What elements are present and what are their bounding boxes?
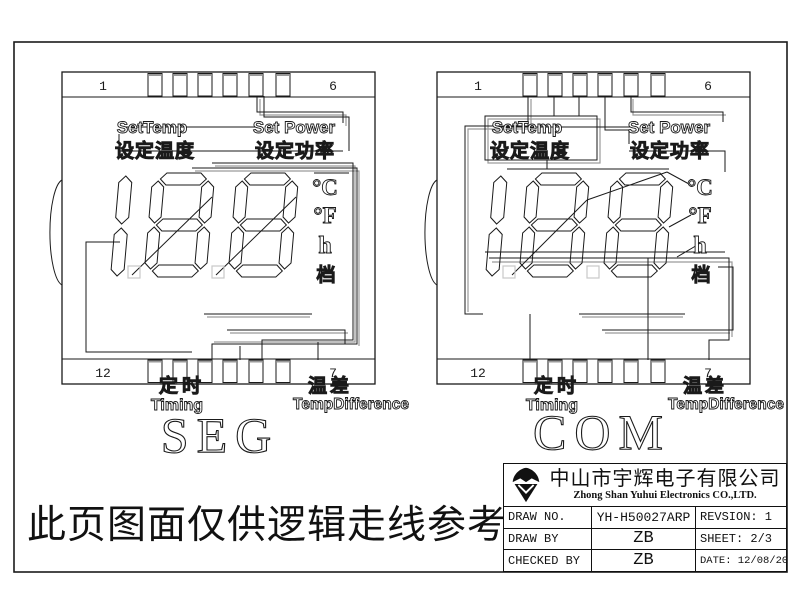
pin-contact-bottom: [651, 360, 665, 383]
decimal-point-left: [503, 266, 515, 278]
gear-symbol: 档: [316, 263, 335, 286]
pin-contact-top: [198, 74, 212, 97]
seven-segment-outline: [160, 173, 207, 185]
draw-by-label: DRAW BY: [504, 529, 592, 551]
seven-segment-outline: [195, 227, 211, 269]
draw-no-label: DRAW NO.: [504, 507, 592, 529]
seven-segment-outline: [152, 265, 199, 277]
set-temp-label-cn: 设定温度: [490, 139, 570, 162]
seven-segment-outline: [244, 173, 291, 185]
set-power-label-en: Set Power: [253, 118, 336, 137]
seven-segment-outline: [604, 227, 620, 269]
digit-1: [111, 176, 133, 276]
lcd-panel-com: 16127SetTemp设定温度Set Power设定功率定时Timing温差T…: [425, 72, 784, 414]
celsius-symbol: °C: [687, 175, 713, 200]
title-block-table: DRAW NO. YH-H50027ARP REVSION: 1 DRAW BY…: [504, 507, 786, 572]
pin-number-12: 12: [95, 366, 111, 381]
digit-8-left: [144, 173, 215, 277]
company-name-en: Zhong Shan Yuhui Electronics CO.,LTD.: [544, 490, 786, 502]
seven-segment-outline: [608, 181, 624, 223]
seven-segment-outline: [658, 181, 674, 223]
routing-trace: [605, 96, 629, 144]
seven-segment-outline: [611, 265, 658, 277]
seven-segment-outline: [524, 181, 540, 223]
date-value: DATE: 12/08/2020: [696, 550, 786, 572]
pin-number-6: 6: [329, 79, 337, 94]
pin-contact-bottom: [624, 360, 638, 383]
seven-segment-outline: [615, 219, 662, 231]
routing-trace: [86, 242, 192, 352]
routing-trace: [512, 200, 587, 275]
pin-contact-top: [624, 74, 638, 97]
seven-segment-outline: [229, 227, 245, 269]
title-block: 中山市宇辉电子有限公司 Zhong Shan Yuhui Electronics…: [503, 463, 787, 572]
digit-one-segment: [490, 176, 507, 224]
draw-by-value: ZB: [592, 529, 696, 551]
pin-contact-top: [598, 74, 612, 97]
set-power-label-cn: 设定功率: [630, 139, 710, 162]
pin-contact-top: [523, 74, 537, 97]
lcd-panel-seg: 16127SetTemp设定温度Set Power设定功率定时Timing温差T…: [50, 72, 409, 414]
seven-segment-outline: [279, 227, 295, 269]
fahrenheit-symbol: °F: [313, 203, 336, 228]
pin-contact-bottom: [249, 360, 263, 383]
temp-diff-label-en: TempDifference: [293, 396, 409, 413]
seven-segment-outline: [527, 265, 574, 277]
gear-symbol: 档: [691, 263, 710, 286]
sheet-value: SHEET: 2/3: [696, 529, 786, 551]
routing-trace: [487, 96, 554, 116]
set-temp-label-en: SetTemp: [492, 118, 563, 137]
seven-segment-outline: [535, 173, 582, 185]
seven-segment-outline: [236, 265, 283, 277]
hour-symbol: h: [318, 233, 331, 259]
timing-label-cn: 定时: [159, 374, 205, 397]
pin-contact-top: [276, 74, 290, 97]
pin-number-6: 6: [704, 79, 712, 94]
pin-contact-top: [548, 74, 562, 97]
digit-8-right: [228, 173, 299, 277]
company-logo-icon: [508, 466, 544, 504]
pin-contact-top: [651, 74, 665, 97]
decimal-point-right: [587, 266, 599, 278]
pin-number-12: 12: [470, 366, 486, 381]
seven-segment-outline: [145, 227, 161, 269]
pin-contact-top: [173, 74, 187, 97]
temp-diff-label-cn: 温差: [683, 374, 727, 397]
drawing-sheet: 16127SetTemp设定温度Set Power设定功率定时Timing温差T…: [0, 0, 800, 608]
routing-trace-gray: [633, 99, 726, 115]
decimal-point-right: [212, 266, 224, 278]
set-temp-label-en: SetTemp: [117, 118, 188, 137]
pin-contact-bottom: [276, 360, 290, 383]
seven-segment-outline: [531, 219, 578, 231]
set-power-label-en: Set Power: [628, 118, 711, 137]
title-block-header: 中山市宇辉电子有限公司 Zhong Shan Yuhui Electronics…: [504, 464, 786, 507]
pin-number-1: 1: [99, 79, 107, 94]
pin-contact-top: [573, 74, 587, 97]
company-name-cn: 中山市宇辉电子有限公司: [544, 468, 786, 490]
pin-contact-top: [148, 74, 162, 97]
temp-diff-label-cn: 温差: [308, 374, 352, 397]
fahrenheit-symbol: °F: [688, 203, 711, 228]
routing-trace: [587, 172, 667, 200]
glass-notch-arc: [425, 180, 437, 285]
pin-number-1: 1: [474, 79, 482, 94]
routing-trace: [718, 267, 733, 324]
hour-symbol: h: [693, 233, 706, 259]
seven-segment-outline: [149, 181, 165, 223]
digit-one-segment: [111, 228, 128, 276]
digit-one-segment: [115, 176, 132, 224]
routing-trace: [667, 172, 689, 184]
seven-segment-outline: [574, 181, 590, 223]
decimal-point-left: [128, 266, 140, 278]
pin-contact-top: [223, 74, 237, 97]
set-power-label-cn: 设定功率: [255, 139, 335, 162]
seven-segment-outline: [654, 227, 670, 269]
checked-by-label: CHECKED BY: [504, 550, 592, 572]
set-temp-label-cn: 设定温度: [115, 139, 195, 162]
revision-value: REVSION: 1: [696, 507, 786, 529]
pin-contact-bottom: [598, 360, 612, 383]
reference-note: 此页图面仅供逻辑走线参考: [27, 494, 497, 550]
seven-segment-outline: [233, 181, 249, 223]
routing-trace: [602, 296, 733, 330]
seven-segment-outline: [520, 227, 536, 269]
seven-segment-outline: [570, 227, 586, 269]
seg-caption: SEG: [161, 407, 279, 463]
com-caption: COM: [533, 404, 671, 460]
temp-diff-label-en: TempDifference: [668, 396, 784, 413]
pin-contact-top: [249, 74, 263, 97]
timing-label-cn: 定时: [534, 374, 580, 397]
celsius-symbol: °C: [312, 175, 338, 200]
digit-1: [486, 176, 508, 276]
pin-contact-bottom: [223, 360, 237, 383]
checked-by-value: ZB: [592, 550, 696, 572]
glass-notch-arc: [50, 180, 62, 285]
draw-no-value: YH-H50027ARP: [592, 507, 696, 529]
